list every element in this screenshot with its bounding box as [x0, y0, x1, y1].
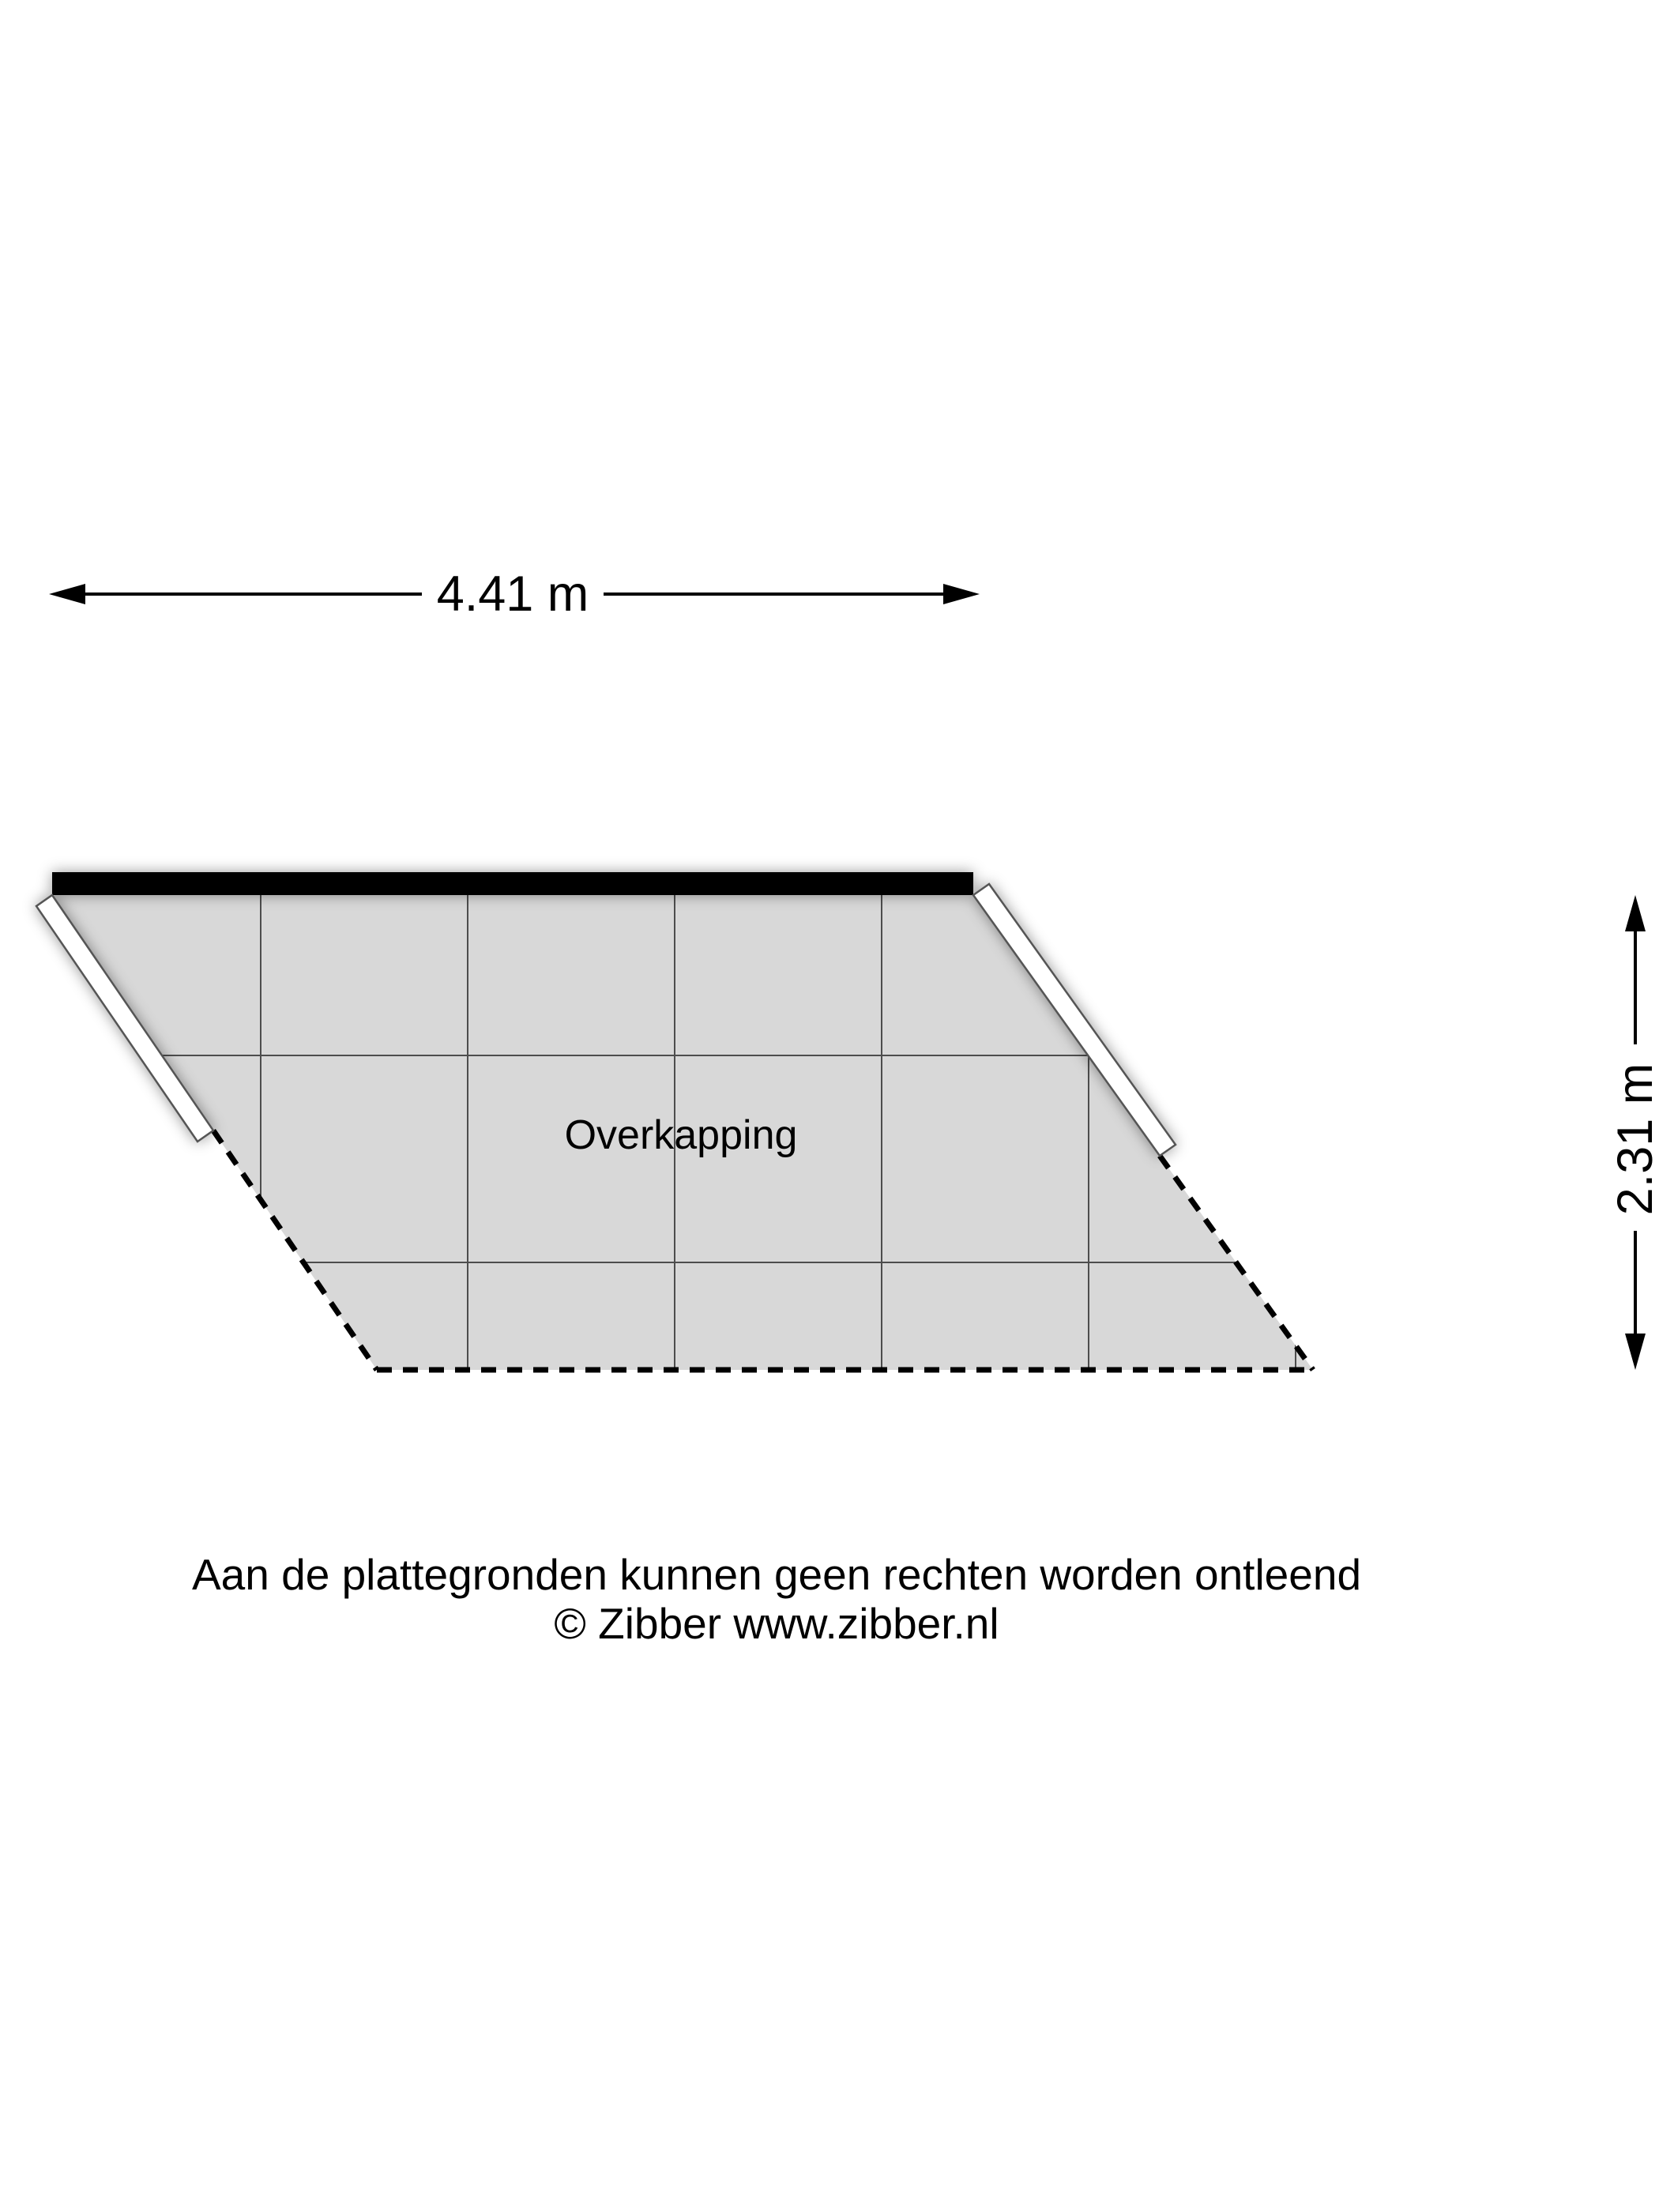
wall-top	[52, 872, 973, 895]
arrow-down-icon	[1625, 1334, 1646, 1370]
arrow-left-icon	[49, 584, 85, 604]
width-dimension-arrow: 4.41 m	[49, 566, 980, 622]
arrow-up-icon	[1625, 895, 1646, 931]
footer-disclaimer: Aan de plattegronden kunnen geen rechten…	[0, 1550, 1553, 1599]
height-dimension-label: 2.31 m	[1608, 1063, 1659, 1216]
footer-copyright: © Zibber www.zibber.nl	[0, 1599, 1553, 1648]
room-label: Overkapping	[565, 1112, 798, 1158]
footer: Aan de plattegronden kunnen geen rechten…	[0, 1550, 1553, 1648]
arrow-right-icon	[943, 584, 980, 604]
width-dimension-label: 4.41 m	[437, 566, 589, 622]
floorplan-drawing: 4.41 m 2.31 m	[0, 0, 1659, 2212]
floorplan-page: 4.41 m 2.31 m	[0, 0, 1659, 2212]
height-dimension-arrow: 2.31 m	[1608, 895, 1659, 1370]
